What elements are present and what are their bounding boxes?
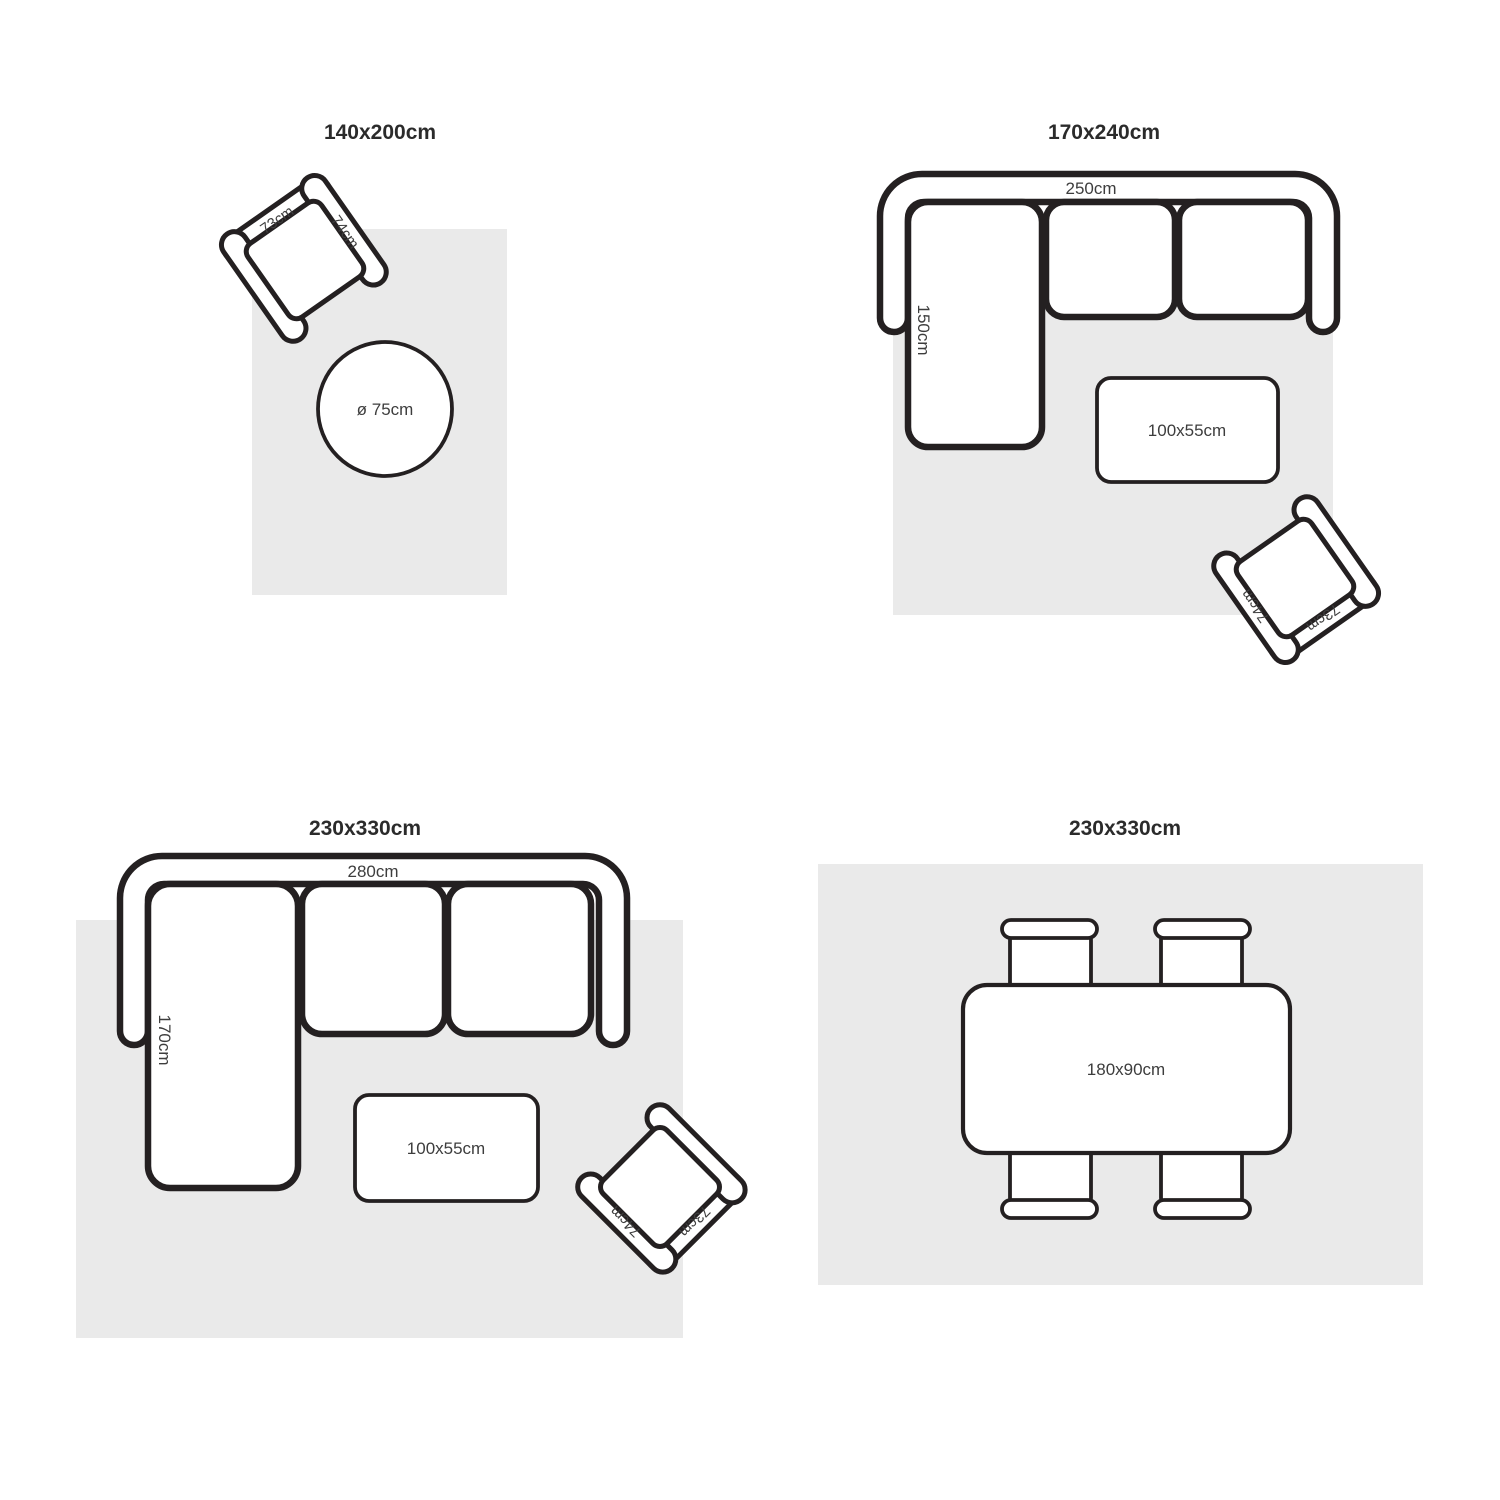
dining-table-size-label: 180x90cm (1087, 1060, 1165, 1079)
sofa-chaise-depth-label: 170cm (155, 1014, 174, 1065)
sofa-chaise-depth-label: 150cm (914, 304, 933, 355)
dining-chair-backrest (1155, 1200, 1250, 1218)
dining-chair-backrest (1155, 920, 1250, 938)
sofa-seat-cushion (448, 884, 591, 1034)
dining-chair-backrest (1002, 1200, 1097, 1218)
sofa-width-label: 250cm (1065, 179, 1116, 198)
dining-chair-seat (1010, 1151, 1091, 1202)
rug-size-guide: 140x200cm 73cm 74cm ø 75cm 170x240cm 250… (0, 0, 1500, 1500)
quadrant-rug-140x200: 140x200cm 73cm 74cm ø 75cm (216, 121, 507, 595)
sofa-seat-cushion (302, 884, 445, 1034)
dining-chair-seat (1010, 936, 1091, 987)
coffee-table-size-label: 100x55cm (407, 1139, 485, 1158)
sofa-seat-cushion (1179, 202, 1308, 317)
dining-chair-seat (1161, 936, 1242, 987)
quadrant-title: 230x330cm (1069, 817, 1181, 840)
quadrant-title: 140x200cm (324, 121, 436, 144)
quadrant-rug-230x330-dining: 230x330cm 180x90cm (818, 817, 1423, 1285)
sofa-seat-cushion (1046, 202, 1175, 317)
dining-chair-seat (1161, 1151, 1242, 1202)
quadrant-title: 170x240cm (1048, 121, 1160, 144)
quadrant-rug-170x240: 170x240cm 250cm 150cm 100x55cm 73cm 74cm (880, 121, 1384, 668)
quadrant-title: 230x330cm (309, 817, 421, 840)
round-table-diameter-label: ø 75cm (357, 400, 414, 419)
sofa-width-label: 280cm (347, 862, 398, 881)
dining-chair (1155, 1151, 1250, 1218)
dining-chair (1002, 920, 1097, 987)
quadrant-rug-230x330-living: 230x330cm 280cm 170cm 100x55cm 73cm 74cm (76, 817, 751, 1338)
dining-chair (1155, 920, 1250, 987)
coffee-table-size-label: 100x55cm (1148, 421, 1226, 440)
dining-chair (1002, 1151, 1097, 1218)
rug-size-diagram: 140x200cm 73cm 74cm ø 75cm 170x240cm 250… (0, 0, 1500, 1500)
dining-chair-backrest (1002, 920, 1097, 938)
